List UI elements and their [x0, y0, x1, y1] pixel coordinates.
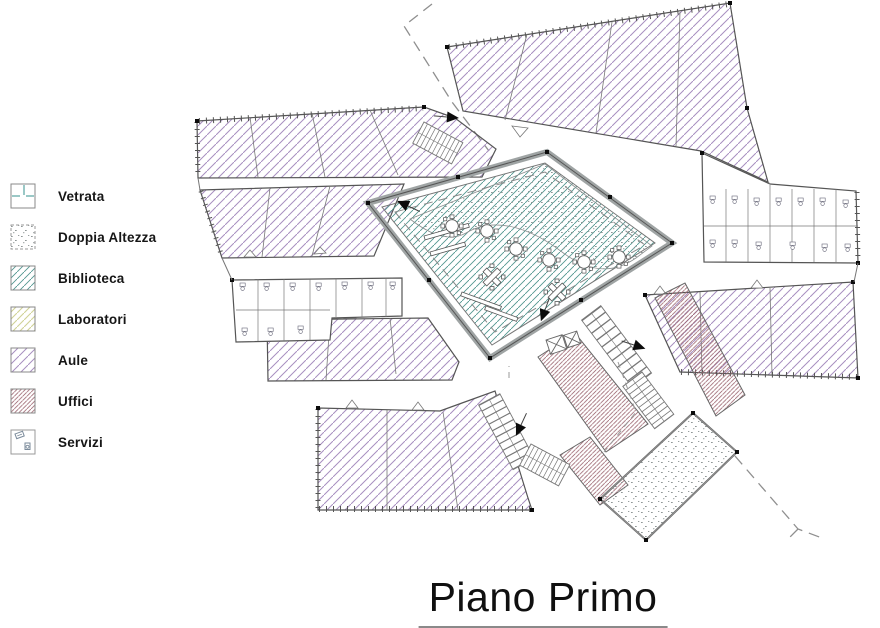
- legend-item-servizi: Servizi: [10, 429, 156, 455]
- legend-item-laboratori: Laboratori: [10, 306, 156, 332]
- library-hatch-swatch-icon: [10, 265, 36, 291]
- legend-label: Doppia Altezza: [58, 230, 156, 245]
- legend-label: Biblioteca: [58, 271, 125, 286]
- services-block-right: [702, 153, 858, 263]
- legend-item-aule: Aule: [10, 347, 156, 373]
- legend-item-doppia-altezza: Doppia Altezza: [10, 224, 156, 250]
- legend: Vetrata Doppia Altezza Biblioteca Labora…: [10, 183, 156, 470]
- wing-aule-top-right: [447, 3, 768, 182]
- legend-item-uffici: Uffici: [10, 388, 156, 414]
- legend-label: Laboratori: [58, 312, 127, 327]
- labs-hatch-swatch-icon: [10, 306, 36, 332]
- floor-plan-page: Vetrata Doppia Altezza Biblioteca Labora…: [0, 0, 880, 628]
- legend-label: Servizi: [58, 435, 103, 450]
- wing-aule-left-band: [200, 184, 404, 258]
- services-fixtures-swatch-icon: [10, 429, 36, 455]
- stipple-swatch-icon: [10, 224, 36, 250]
- classrooms-hatch-swatch-icon: [10, 347, 36, 373]
- window-symbol-icon: [10, 183, 36, 209]
- page-title: Piano Primo: [419, 574, 668, 628]
- legend-item-vetrata: Vetrata: [10, 183, 156, 209]
- legend-label: Uffici: [58, 394, 93, 409]
- section-cut-line-bottom: [735, 456, 822, 541]
- legend-label: Vetrata: [58, 189, 104, 204]
- stair-bottom: [520, 444, 570, 486]
- legend-label: Aule: [58, 353, 88, 368]
- offices-hatch-swatch-icon: [10, 388, 36, 414]
- legend-item-biblioteca: Biblioteca: [10, 265, 156, 291]
